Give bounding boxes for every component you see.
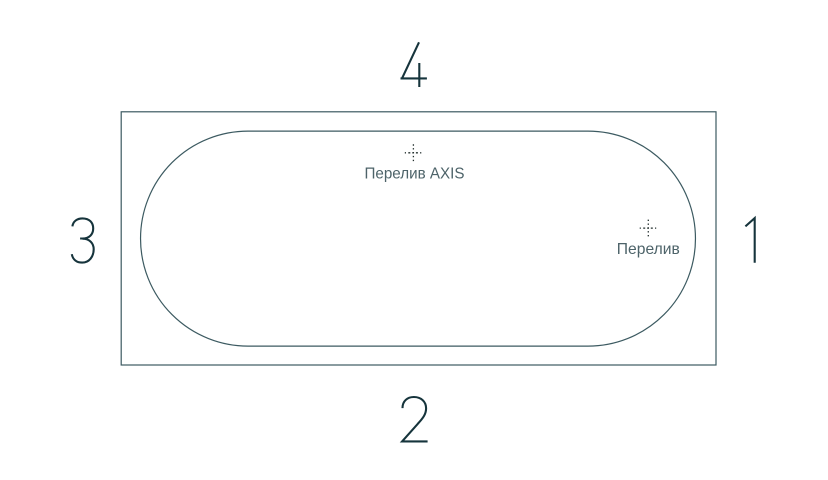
svg-text:Перелив AXIS: Перелив AXIS: [365, 166, 465, 183]
svg-text:Перелив: Перелив: [617, 241, 680, 258]
